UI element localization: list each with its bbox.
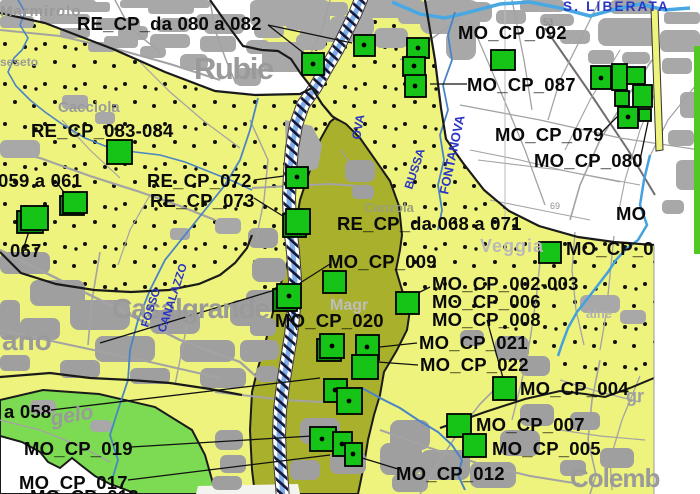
svg-text:S. LIBERATA: S. LIBERATA bbox=[563, 0, 670, 14]
svg-text:RE_CP_072: RE_CP_072 bbox=[147, 170, 252, 191]
svg-text:69: 69 bbox=[550, 201, 560, 211]
svg-text:MO_CP_020: MO_CP_020 bbox=[275, 310, 384, 331]
svg-text:Cacciola: Cacciola bbox=[58, 99, 120, 116]
svg-text:MO_CP_022: MO_CP_022 bbox=[420, 354, 529, 375]
svg-text:Casalgrande: Casalgrande bbox=[112, 293, 269, 324]
svg-text:MO_CP_008: MO_CP_008 bbox=[432, 309, 541, 330]
svg-text:MO_CP_0: MO_CP_0 bbox=[566, 238, 654, 259]
svg-text:MO_CP_018: MO_CP_018 bbox=[30, 486, 139, 494]
svg-text:RE_CP_da 068 a 071: RE_CP_da 068 a 071 bbox=[337, 213, 522, 234]
svg-text:MO_CP_080: MO_CP_080 bbox=[534, 150, 643, 171]
svg-text:MO_CP_079: MO_CP_079 bbox=[495, 124, 604, 145]
svg-text:a 058: a 058 bbox=[4, 401, 51, 422]
svg-text:RE_CP_083-084: RE_CP_083-084 bbox=[31, 120, 174, 141]
svg-text:MO_CP_004: MO_CP_004 bbox=[520, 378, 629, 399]
svg-text:MO_CP_012: MO_CP_012 bbox=[396, 463, 505, 484]
svg-text:MO_CP_009: MO_CP_009 bbox=[328, 251, 437, 272]
svg-text:Veggia: Veggia bbox=[480, 236, 544, 256]
svg-text:059 a 061: 059 a 061 bbox=[0, 170, 82, 191]
svg-text:Marmirolo: Marmirolo bbox=[0, 3, 82, 20]
svg-text:MO_CP_092: MO_CP_092 bbox=[458, 22, 567, 43]
svg-text:Rubie: Rubie bbox=[194, 51, 274, 86]
svg-text:RE_CP_da 080 a 082: RE_CP_da 080 a 082 bbox=[77, 13, 262, 34]
svg-text:MO_CP_005: MO_CP_005 bbox=[492, 438, 601, 459]
svg-text:MO_CP_007: MO_CP_007 bbox=[476, 414, 585, 435]
svg-text:067: 067 bbox=[10, 240, 41, 261]
svg-text:Colemb: Colemb bbox=[570, 463, 659, 493]
svg-text:MO: MO bbox=[616, 203, 646, 224]
svg-text:RE_CP_073: RE_CP_073 bbox=[150, 190, 255, 211]
svg-text:MO_CP_087: MO_CP_087 bbox=[467, 74, 576, 95]
svg-text:MO_CP_021: MO_CP_021 bbox=[419, 332, 528, 353]
svg-text:seseto: seseto bbox=[0, 55, 38, 69]
svg-text:ano: ano bbox=[2, 325, 52, 356]
svg-text:MO_CP_019: MO_CP_019 bbox=[24, 438, 133, 459]
svg-text:alne: alne bbox=[586, 306, 612, 321]
